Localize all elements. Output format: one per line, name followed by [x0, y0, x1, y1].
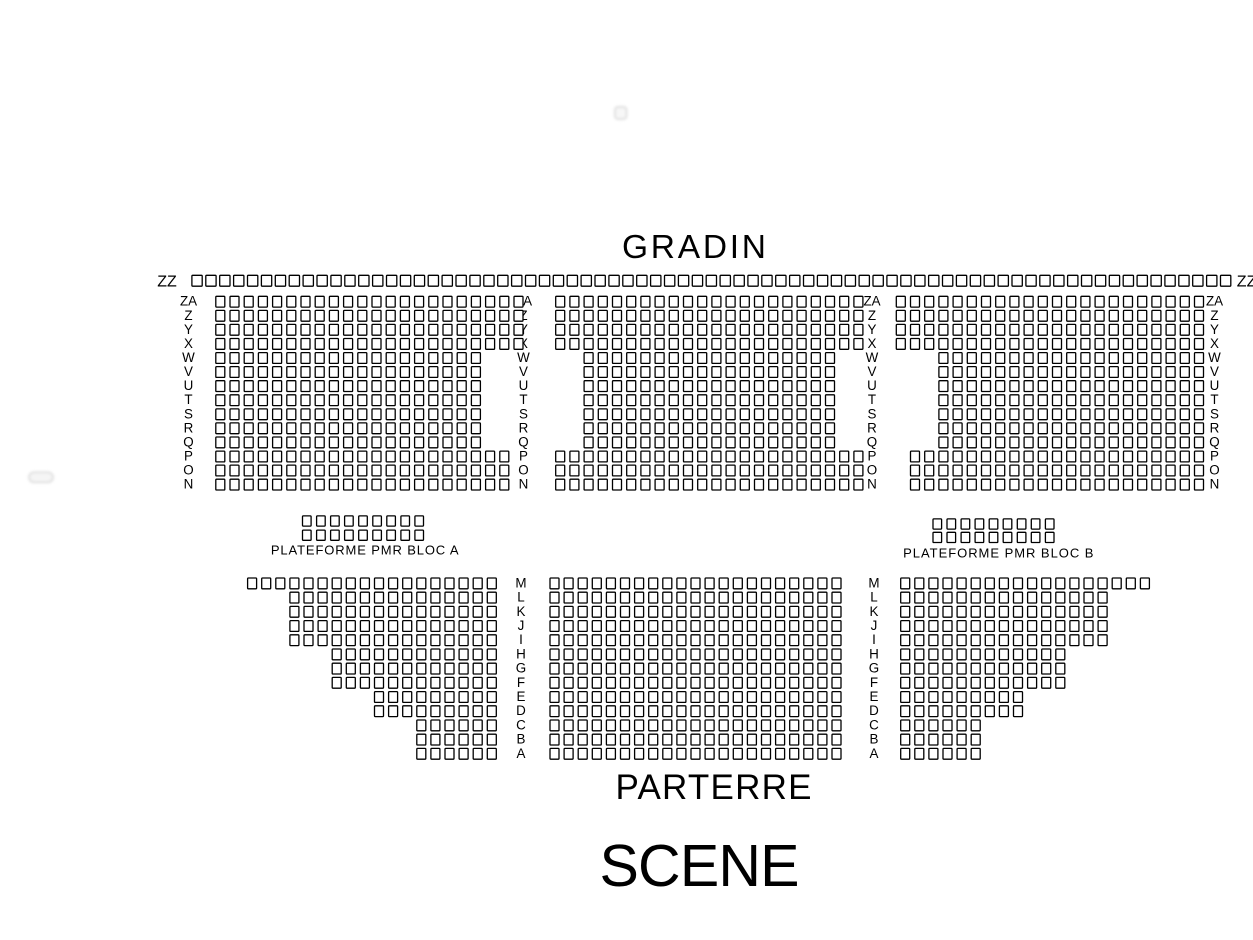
svg-text:P: P [184, 449, 193, 464]
svg-text:SCENE: SCENE [600, 833, 800, 899]
svg-text:V: V [184, 364, 193, 379]
svg-text:N: N [184, 477, 194, 492]
svg-text:K: K [517, 604, 526, 619]
svg-text:R: R [184, 420, 194, 435]
svg-text:PARTERRE: PARTERRE [616, 768, 812, 807]
svg-text:I: I [519, 632, 523, 647]
svg-text:N: N [1210, 477, 1220, 492]
svg-text:A: A [870, 746, 879, 761]
svg-text:J: J [518, 618, 525, 633]
svg-text:C: C [516, 717, 526, 732]
svg-text:W: W [866, 350, 879, 365]
svg-text:I: I [872, 632, 876, 647]
svg-text:P: P [519, 449, 528, 464]
svg-text:ZZ: ZZ [1237, 274, 1253, 291]
svg-text:S: S [519, 406, 528, 421]
svg-text:D: D [869, 703, 879, 718]
svg-text:B: B [870, 732, 879, 747]
svg-text:W: W [1208, 350, 1221, 365]
svg-text:ZA: ZA [1206, 294, 1223, 309]
svg-text:U: U [1210, 378, 1220, 393]
svg-text:S: S [1210, 406, 1219, 421]
svg-text:W: W [182, 350, 195, 365]
svg-text:M: M [515, 575, 526, 590]
svg-text:L: L [870, 590, 877, 605]
svg-text:P: P [868, 449, 877, 464]
svg-text:Q: Q [1209, 434, 1219, 449]
svg-text:GRADIN: GRADIN [622, 229, 766, 266]
svg-text:ZA: ZA [180, 294, 197, 309]
svg-text:A: A [517, 746, 526, 761]
svg-text:PLATEFORME PMR BLOC A: PLATEFORME PMR BLOC A [271, 542, 459, 557]
svg-text:L: L [517, 590, 524, 605]
svg-text:E: E [517, 689, 526, 704]
svg-text:PLATEFORME PMR BLOC B: PLATEFORME PMR BLOC B [903, 545, 1093, 560]
svg-text:F: F [870, 675, 878, 690]
svg-text:Z: Z [868, 308, 876, 323]
svg-text:R: R [1210, 420, 1220, 435]
svg-text:T: T [184, 392, 192, 407]
svg-text:U: U [867, 378, 877, 393]
svg-text:O: O [867, 463, 877, 478]
svg-text:V: V [1210, 364, 1219, 379]
svg-text:J: J [871, 618, 878, 633]
svg-text:G: G [516, 661, 526, 676]
svg-text:N: N [867, 477, 877, 492]
svg-text:R: R [867, 420, 877, 435]
svg-text:K: K [870, 604, 879, 619]
svg-text:Y: Y [868, 322, 877, 337]
svg-text:ZZ: ZZ [157, 274, 177, 291]
svg-text:G: G [869, 661, 879, 676]
svg-text:E: E [870, 689, 879, 704]
svg-text:Q: Q [183, 434, 193, 449]
svg-text:O: O [183, 463, 193, 478]
svg-text:C: C [869, 717, 879, 732]
svg-text:X: X [184, 336, 193, 351]
svg-text:ZA: ZA [863, 294, 880, 309]
svg-text:D: D [516, 703, 526, 718]
svg-text:M: M [868, 575, 879, 590]
svg-text:H: H [516, 646, 526, 661]
svg-text:T: T [519, 392, 527, 407]
svg-text:O: O [518, 463, 528, 478]
svg-text:U: U [519, 378, 529, 393]
svg-text:B: B [517, 732, 526, 747]
svg-text:T: T [1210, 392, 1218, 407]
svg-text:Z: Z [1210, 308, 1218, 323]
svg-text:H: H [869, 646, 879, 661]
svg-text:X: X [868, 336, 877, 351]
svg-text:U: U [184, 378, 194, 393]
svg-text:V: V [519, 364, 528, 379]
svg-text:W: W [517, 350, 530, 365]
svg-text:Q: Q [867, 434, 877, 449]
svg-text:S: S [184, 406, 193, 421]
svg-text:R: R [519, 420, 529, 435]
svg-text:V: V [868, 364, 877, 379]
svg-text:F: F [517, 675, 525, 690]
svg-text:O: O [1209, 463, 1219, 478]
svg-text:Z: Z [184, 308, 192, 323]
svg-text:N: N [519, 477, 529, 492]
svg-text:S: S [868, 406, 877, 421]
svg-text:Y: Y [1210, 322, 1219, 337]
svg-text:Q: Q [518, 434, 528, 449]
svg-text:Y: Y [184, 322, 193, 337]
svg-text:T: T [868, 392, 876, 407]
svg-text:X: X [1210, 336, 1219, 351]
svg-text:P: P [1210, 449, 1219, 464]
